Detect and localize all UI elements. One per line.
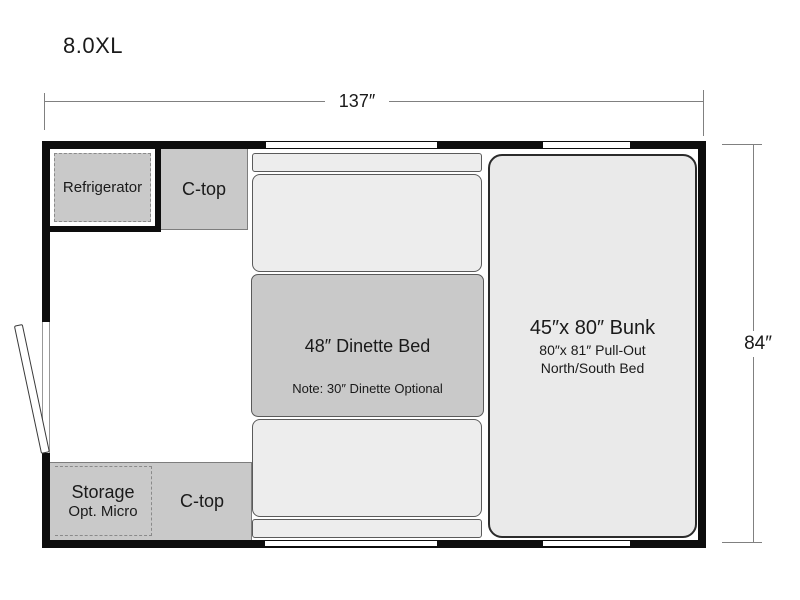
storage-sublabel: Opt. Micro (68, 503, 137, 521)
width-dimension-tick-right (703, 90, 704, 136)
dinette-bed-note: Note: 30″ Dinette Optional (252, 381, 483, 397)
refrigerator: Refrigerator (54, 153, 151, 222)
width-dimension-label: 137″ (325, 90, 389, 112)
countertop-upper-label: C-top (182, 179, 226, 200)
bunk-bed-sub1: 80″x 81″ Pull-Out (539, 341, 645, 359)
bunk-bed: 45″x 80″ Bunk 80″x 81″ Pull-Out North/So… (488, 154, 697, 538)
dinette-seat-top (252, 174, 482, 272)
window-opening-bottom-left (265, 541, 437, 546)
height-dimension-tick-bottom (722, 542, 762, 543)
dinette-seat-bottom (252, 419, 482, 517)
dinette-backrest-top (252, 153, 482, 172)
storage-compartment: Storage Opt. Micro (55, 466, 152, 536)
dinette-bed-label: 48″ Dinette Bed (252, 335, 483, 357)
width-dimension-tick-left (44, 93, 45, 130)
countertop-lower: C-top (152, 462, 252, 540)
floorplan-canvas: 8.0XL 137″ 84″ Refrigerator C-top 48″ Di… (0, 0, 800, 600)
storage-label: Storage (71, 482, 134, 503)
height-dimension-label: 84″ (731, 331, 785, 357)
bunk-bed-label: 45″x 80″ Bunk (530, 315, 655, 341)
refrigerator-label: Refrigerator (63, 179, 142, 196)
dinette-bed: 48″ Dinette Bed Note: 30″ Dinette Option… (251, 274, 484, 417)
model-title: 8.0XL (63, 33, 123, 59)
window-opening-bottom-right (543, 541, 630, 546)
height-dimension-tick-top (722, 144, 762, 145)
window-opening-top-right (543, 142, 630, 148)
dinette-backrest-bottom (252, 519, 482, 538)
countertop-lower-label: C-top (180, 491, 224, 512)
bunk-bed-sub2: North/South Bed (541, 359, 645, 377)
window-opening-top-left (266, 142, 437, 148)
countertop-upper: C-top (161, 149, 248, 230)
